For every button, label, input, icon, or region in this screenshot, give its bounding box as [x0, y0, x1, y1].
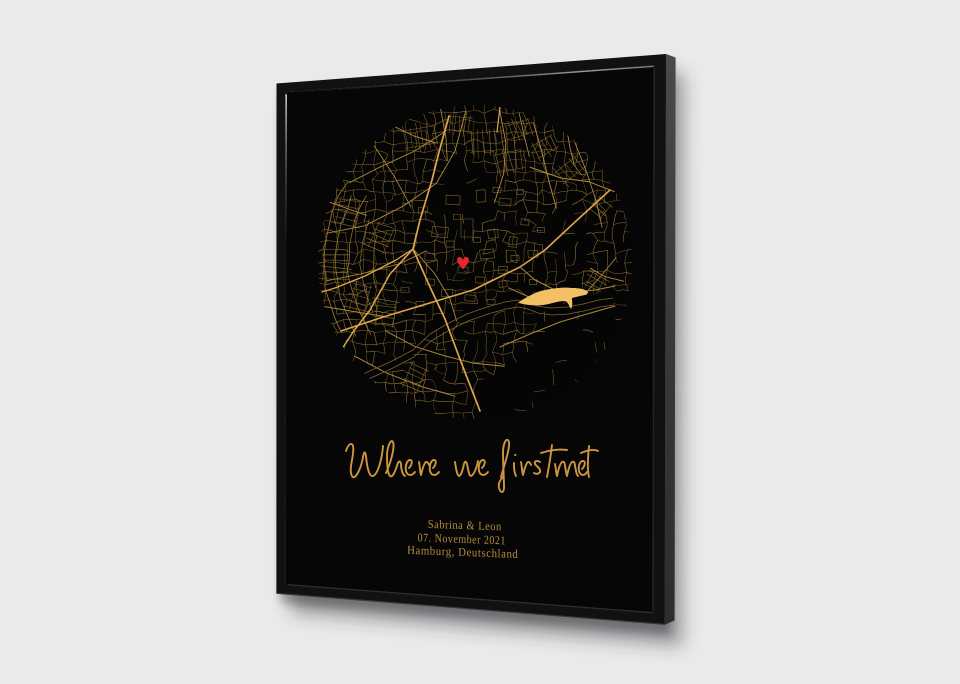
svg-text:Sabrina & Leon: Sabrina & Leon — [428, 518, 502, 533]
